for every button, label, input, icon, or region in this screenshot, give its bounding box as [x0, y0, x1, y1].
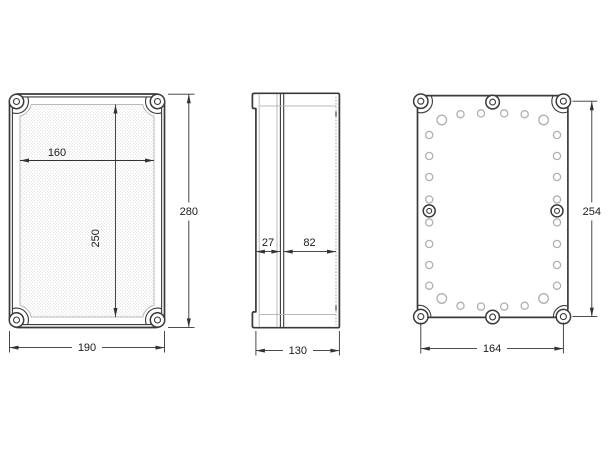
knockout-hole — [457, 302, 464, 309]
knockout-hole — [457, 111, 464, 118]
dim-label-fixing-width: 164 — [483, 343, 501, 355]
screw-icon — [427, 208, 432, 213]
screw-icon — [418, 314, 424, 320]
front-view: 160 250 280 190 — [9, 94, 198, 354]
screw-icon — [560, 98, 566, 104]
dim-label-overall-depth: 130 — [289, 345, 307, 357]
knockout-hole — [426, 219, 433, 226]
back-screws — [414, 94, 571, 324]
knockout-hole — [521, 302, 528, 309]
dim-label-inner-width: 160 — [48, 147, 66, 159]
knockout-hole — [501, 110, 508, 117]
screw-icon — [490, 99, 496, 105]
knockout-hole — [501, 303, 508, 310]
knockout-hole — [553, 131, 560, 138]
knockout-hole — [426, 261, 433, 268]
screw-icon — [418, 98, 424, 104]
screw-icon — [155, 99, 161, 105]
technical-drawing-canvas: 160 250 280 190 27 82 — [0, 0, 610, 450]
knockout-hole — [437, 115, 447, 125]
knockout-hole — [426, 131, 433, 138]
knockout-hole — [426, 173, 433, 180]
knockout-hole — [553, 173, 560, 180]
knockout-hole — [553, 282, 560, 289]
knockout-hole — [553, 261, 560, 268]
dim-label-lid-depth: 27 — [262, 237, 274, 249]
side-view: 27 82 130 — [252, 93, 339, 357]
knockout-hole — [539, 294, 549, 304]
knockout-hole — [553, 240, 560, 247]
back-outer-edge — [418, 96, 568, 318]
dim-label-base-depth: 82 — [303, 237, 315, 249]
knockout-hole — [426, 240, 433, 247]
dim-label-fixing-height: 254 — [583, 206, 601, 218]
screw-icon — [555, 208, 560, 213]
dim-label-inner-height: 250 — [90, 229, 102, 247]
screw-icon — [14, 99, 20, 105]
back-view: 254 164 — [414, 94, 601, 355]
screw-icon — [155, 317, 161, 323]
drawing-page: 160 250 280 190 27 82 — [0, 0, 610, 450]
side-dimensions: 27 82 130 — [256, 237, 340, 357]
front-textured-panel — [20, 105, 154, 318]
knockout-hole — [553, 152, 560, 159]
side-outline — [252, 93, 339, 327]
knockout-hole — [539, 115, 549, 125]
dim-label-outer-width: 190 — [78, 342, 96, 354]
knockout-hole — [477, 303, 484, 310]
knockout-hole — [426, 282, 433, 289]
screw-icon — [490, 314, 496, 320]
knockout-hole — [437, 294, 447, 304]
knockout-hole — [553, 219, 560, 226]
knockout-hole — [426, 196, 433, 203]
dim-label-outer-height: 280 — [180, 206, 198, 218]
screw-icon — [14, 317, 20, 323]
knockout-hole — [553, 196, 560, 203]
screw-icon — [560, 314, 566, 320]
knockout-hole — [521, 111, 528, 118]
knockout-hole — [426, 152, 433, 159]
knockout-hole — [477, 110, 484, 117]
knockout-holes — [426, 110, 561, 310]
